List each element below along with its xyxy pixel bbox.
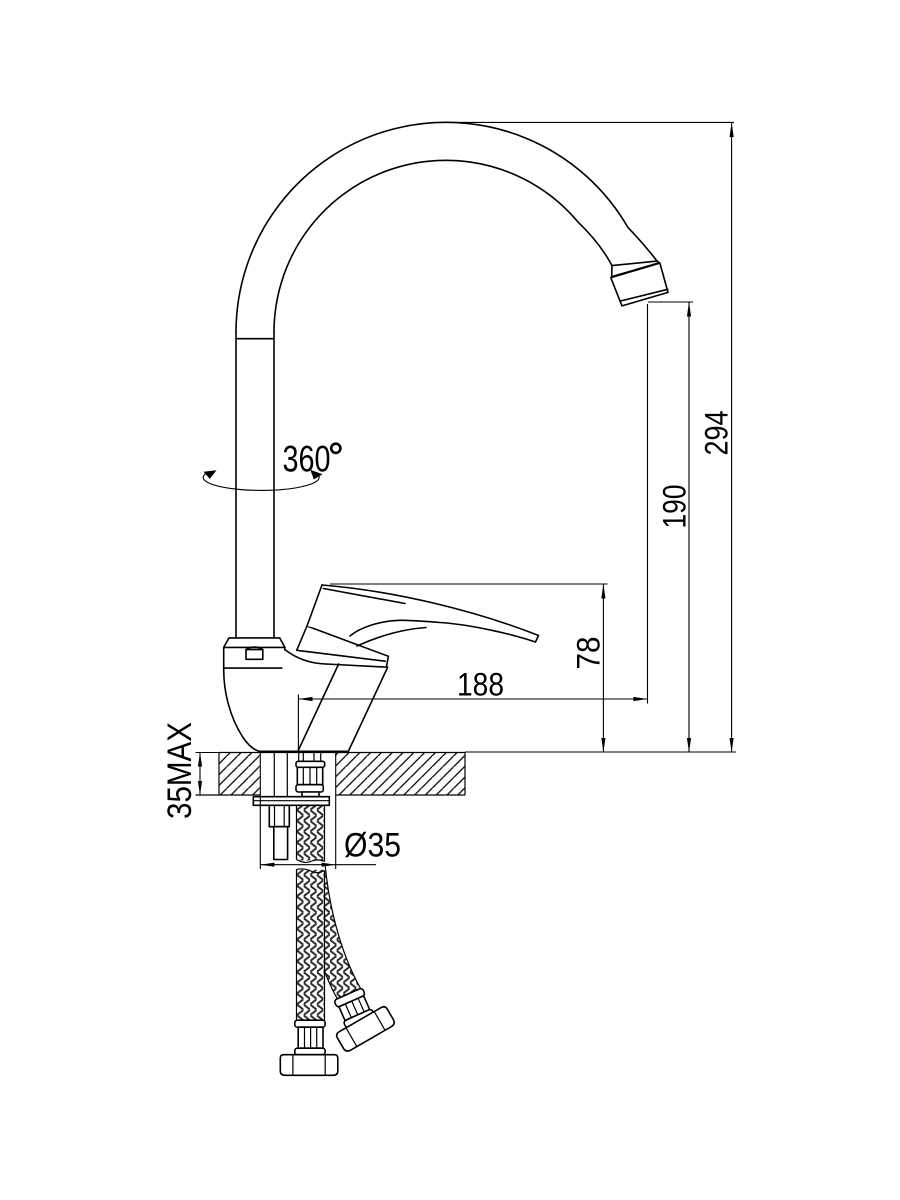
svg-text:78: 78 — [571, 637, 607, 670]
svg-text:190: 190 — [657, 485, 693, 529]
svg-text:Ø35: Ø35 — [344, 827, 401, 865]
svg-text:360: 360 — [283, 439, 331, 480]
svg-text:188: 188 — [457, 667, 504, 703]
svg-text:35MAX: 35MAX — [161, 722, 199, 819]
svg-text:294: 294 — [699, 411, 735, 456]
